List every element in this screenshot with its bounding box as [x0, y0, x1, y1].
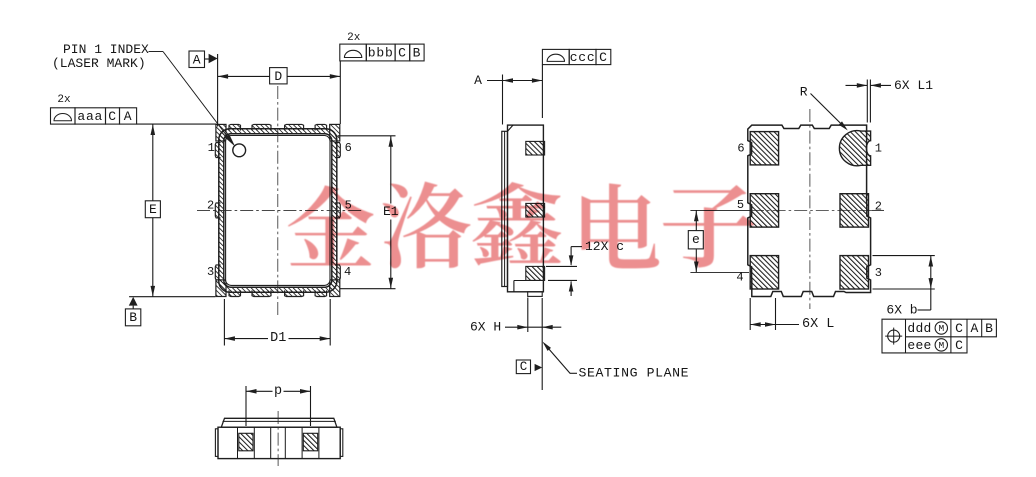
svg-text:C: C — [108, 109, 117, 124]
svg-text:6: 6 — [737, 141, 744, 155]
svg-text:4: 4 — [736, 271, 743, 285]
svg-text:3: 3 — [207, 265, 214, 279]
svg-text:A: A — [124, 109, 133, 124]
svg-text:D: D — [274, 69, 282, 84]
svg-text:2x: 2x — [347, 32, 361, 44]
svg-text:A: A — [474, 73, 482, 88]
svg-text:C: C — [955, 338, 963, 353]
svg-text:6: 6 — [345, 141, 352, 155]
svg-text:PIN 1 INDEX: PIN 1 INDEX — [63, 42, 149, 57]
svg-text:(LASER MARK): (LASER MARK) — [52, 56, 146, 71]
svg-text:E: E — [149, 202, 157, 217]
svg-text:C: C — [955, 321, 963, 336]
svg-text:M: M — [938, 340, 944, 351]
svg-text:C: C — [599, 50, 608, 65]
svg-text:C: C — [520, 360, 528, 374]
svg-text:6X L: 6X L — [802, 317, 834, 332]
svg-text:2x: 2x — [57, 94, 71, 106]
svg-text:2: 2 — [207, 198, 214, 212]
svg-text:p: p — [274, 384, 282, 399]
svg-text:e: e — [692, 232, 700, 247]
svg-text:4: 4 — [344, 265, 351, 279]
svg-text:A: A — [970, 321, 978, 336]
svg-text:B: B — [129, 310, 137, 325]
svg-text:ccc: ccc — [570, 50, 596, 65]
svg-text:SEATING PLANE: SEATING PLANE — [579, 366, 690, 381]
svg-text:ddd: ddd — [907, 321, 931, 336]
svg-text:6X L1: 6X L1 — [894, 78, 933, 93]
svg-text:eee: eee — [907, 338, 931, 353]
svg-text:B: B — [413, 46, 422, 61]
svg-text:R: R — [800, 85, 808, 100]
svg-text:1: 1 — [875, 141, 882, 155]
svg-text:aaa: aaa — [77, 109, 103, 124]
svg-text:2: 2 — [875, 199, 882, 213]
svg-text:A: A — [193, 52, 201, 67]
svg-text:3: 3 — [875, 266, 882, 280]
svg-text:1: 1 — [208, 141, 215, 155]
svg-text:C: C — [398, 46, 407, 61]
svg-text:B: B — [985, 321, 993, 336]
svg-text:D1: D1 — [270, 331, 286, 346]
svg-text:6X H: 6X H — [470, 320, 501, 335]
svg-text:bbb: bbb — [368, 46, 394, 61]
svg-text:6X b: 6X b — [886, 302, 917, 317]
svg-text:M: M — [938, 323, 944, 334]
svg-text:5: 5 — [737, 198, 744, 212]
